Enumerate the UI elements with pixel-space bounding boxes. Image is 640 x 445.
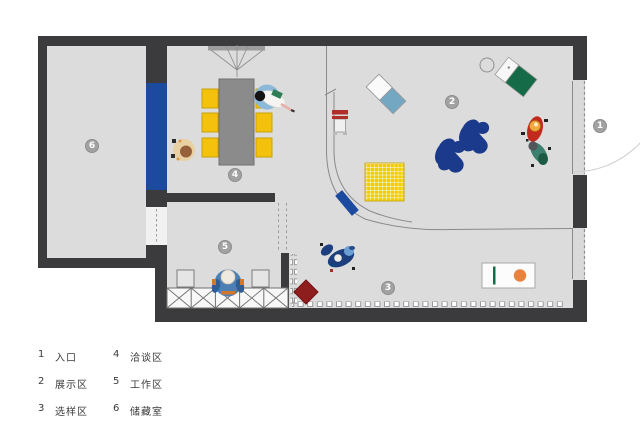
- legend-label-meeting: 洽谈区: [130, 349, 190, 359]
- storage-room-floor: [47, 46, 146, 258]
- legend-num-3: 3: [38, 403, 55, 413]
- tile-edge-row: [292, 302, 564, 309]
- step-trolley: [332, 110, 348, 135]
- badge-sample-area: 3: [381, 281, 395, 295]
- legend-num-4: 4: [113, 349, 130, 359]
- wall-right-bottom: [573, 280, 587, 322]
- blue-feature-wall: [146, 83, 167, 190]
- legend-num-5: 5: [113, 376, 130, 386]
- legend: 1 入口 4 洽谈区 2 展示区 5 工作区 3 选样区 6 储藏室: [38, 349, 190, 413]
- wall-right-top: [573, 36, 587, 80]
- legend-num-1: 1: [38, 349, 55, 359]
- meeting-table: [219, 79, 254, 165]
- wall-divider-mid: [146, 190, 167, 207]
- wall-workarea-top: [167, 193, 275, 202]
- badge-display-area: 2: [445, 95, 459, 109]
- work-chair-left: [177, 270, 194, 287]
- badge-entrance: 1: [593, 119, 607, 133]
- legend-num-6: 6: [113, 403, 130, 413]
- wall-top: [38, 36, 587, 46]
- yellow-grid-rug: [365, 163, 404, 201]
- wall-bottom: [155, 308, 587, 322]
- reception-desk: [482, 263, 535, 288]
- legend-num-2: 2: [38, 376, 55, 386]
- entrance-threshold: [573, 80, 585, 175]
- legend-label-entrance: 入口: [55, 349, 113, 359]
- wall-divider-upper: [146, 36, 167, 83]
- legend-label-work: 工作区: [130, 376, 190, 386]
- top-window-bar: [208, 46, 265, 51]
- badge-work-area: 5: [218, 240, 232, 254]
- wall-left: [38, 36, 47, 268]
- legend-label-display: 展示区: [55, 376, 113, 386]
- floor-plan-page: 1 2 3 4 5 6 1 入口 4 洽谈区 2 展示区 5 工作区 3 选样区…: [0, 0, 640, 445]
- legend-label-storage: 储藏室: [130, 403, 190, 413]
- tile-edge-column: [291, 254, 298, 304]
- legend-label-sample: 选样区: [55, 403, 113, 413]
- person-seated-left: [171, 139, 195, 161]
- badge-meeting-area: 4: [228, 168, 242, 182]
- wall-right-mid: [573, 175, 587, 228]
- window-threshold: [573, 228, 585, 280]
- badge-storage-room: 6: [85, 139, 99, 153]
- floor-plan: 1 2 3 4 5 6: [0, 0, 640, 340]
- floor-plan-drawing: [0, 0, 640, 340]
- work-chair-right: [252, 270, 269, 287]
